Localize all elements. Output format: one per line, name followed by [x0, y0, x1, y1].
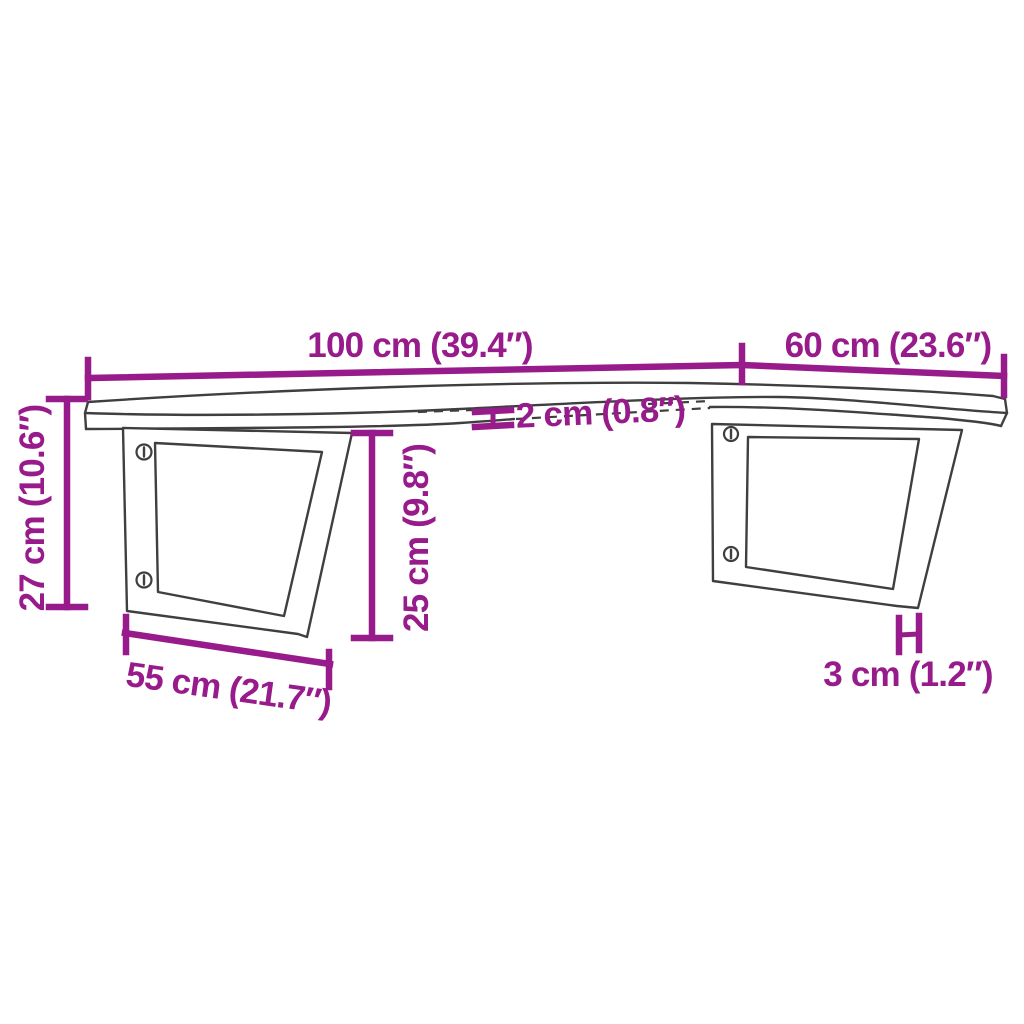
dim-marker-bracket-thickness — [899, 616, 919, 652]
left-bracket-frame — [123, 428, 352, 637]
dim-line-bracket-height — [354, 433, 390, 638]
dim-label-bracket-thickness: 3 cm (1.2″) — [823, 655, 992, 694]
screw-icon — [137, 445, 152, 460]
screw-icon — [724, 427, 738, 441]
dim-label-length: 100 cm (39.4″) — [307, 326, 532, 365]
dim-label-depth: 60 cm (23.6″) — [785, 326, 992, 365]
diagram-canvas: 100 cm (39.4″) 60 cm (23.6″) 27 cm (10.6… — [0, 0, 1024, 1024]
left-bracket — [123, 428, 352, 637]
dimension-diagram: 100 cm (39.4″) 60 cm (23.6″) 27 cm (10.6… — [0, 0, 1024, 1024]
dim-label-height: 27 cm (10.6″) — [13, 405, 52, 612]
dim-label-top-thickness: 2 cm (0.8″) — [515, 389, 686, 435]
dim-label-bracket-width: 55 cm (21.7″) — [124, 655, 334, 722]
screw-icon — [724, 547, 738, 561]
right-bracket — [712, 424, 962, 608]
screw-icon — [137, 573, 152, 588]
dim-line-height — [49, 399, 85, 607]
dim-label-bracket-height: 25 cm (9.8″) — [397, 444, 436, 632]
right-bracket-frame — [712, 424, 962, 608]
shelf-left-end-edge — [85, 413, 86, 429]
